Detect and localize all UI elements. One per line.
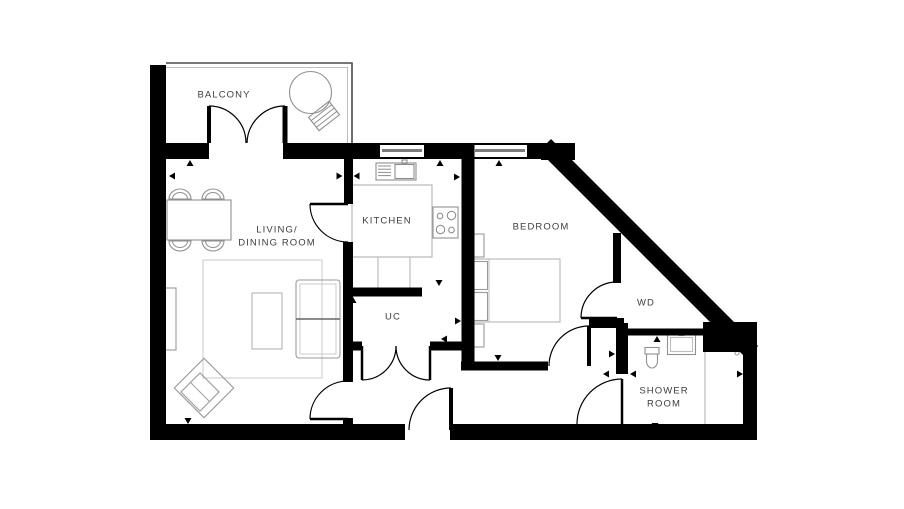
dimension-arrow <box>455 318 461 325</box>
room-label-kitchen: KITCHEN <box>362 216 411 229</box>
dimension-arrow <box>609 351 615 358</box>
dining-chair-back <box>173 241 188 248</box>
hob-burner <box>449 227 455 233</box>
bedroom-door-swing <box>549 326 589 366</box>
balcony-door-right-swing <box>247 106 285 143</box>
dining-chair-back <box>206 193 221 200</box>
room-label-shower: SHOWER ROOM <box>639 385 688 410</box>
bathroom-basin-inner <box>671 338 693 352</box>
armchair <box>174 358 233 417</box>
dimension-arrow <box>441 336 447 343</box>
wall <box>703 322 757 352</box>
shower-door-swing <box>577 379 622 424</box>
dining-chair-back <box>206 241 221 248</box>
floor-plan-svg <box>0 0 904 509</box>
coffee-table <box>252 293 282 349</box>
wall <box>551 151 746 346</box>
dimension-arrow <box>454 174 460 181</box>
window-frame-inner <box>473 157 527 159</box>
uc-door-left-swing <box>362 346 396 380</box>
dimension-arrow <box>603 371 609 378</box>
room-label-uc: UC <box>385 312 401 325</box>
dimension-arrow <box>185 418 192 424</box>
window-glazing <box>475 149 525 152</box>
floor-plan: BALCONY LIVING/ DINING ROOM KITCHEN BEDR… <box>0 0 904 509</box>
toilet-bowl <box>647 354 658 368</box>
dimension-arrow <box>337 173 343 180</box>
balcony-railing-inner <box>166 68 348 144</box>
dimension-arrow <box>496 160 503 166</box>
dimension-arrow <box>437 160 444 166</box>
living-door-swing <box>310 381 348 419</box>
armchair <box>174 358 233 417</box>
hob-burner <box>447 211 455 219</box>
room-label-balcony: BALCONY <box>197 90 250 103</box>
balcony-table <box>290 72 332 114</box>
wd-door-swing <box>581 282 617 318</box>
hob-burner <box>436 225 444 233</box>
window-frame-inner <box>380 157 424 159</box>
window-glazing <box>382 149 422 152</box>
armchair-seat-slat <box>190 382 209 401</box>
entrance-door-swing <box>409 388 451 430</box>
dimension-arrow <box>737 371 743 378</box>
armchair-seat <box>181 373 219 411</box>
dimension-arrow <box>495 355 502 361</box>
dimension-arrow <box>354 173 360 180</box>
dimension-arrow <box>169 173 175 180</box>
wall <box>541 143 575 160</box>
room-label-wd: WD <box>637 298 655 311</box>
sink-basin <box>395 165 414 179</box>
hob-burner <box>437 213 443 219</box>
toilet-cistern <box>645 348 659 355</box>
balcony-chair <box>309 101 340 130</box>
shower-tray <box>705 348 745 428</box>
room-label-living: LIVING/ DINING ROOM <box>238 224 316 249</box>
bed <box>467 259 560 322</box>
dining-table <box>167 200 231 240</box>
dimension-arrow <box>187 160 194 166</box>
dimension-arrow <box>630 371 636 378</box>
room-label-bedroom: BEDROOM <box>513 222 570 235</box>
dimension-arrow <box>436 280 443 286</box>
balcony-railing <box>166 63 352 143</box>
uc-door-right-swing <box>396 346 430 380</box>
window-frame-outer <box>473 143 527 145</box>
balcony-door-left-swing <box>209 106 246 143</box>
window-frame-outer <box>380 143 424 145</box>
dining-chair-back <box>173 193 188 200</box>
dimension-arrow <box>654 336 661 342</box>
